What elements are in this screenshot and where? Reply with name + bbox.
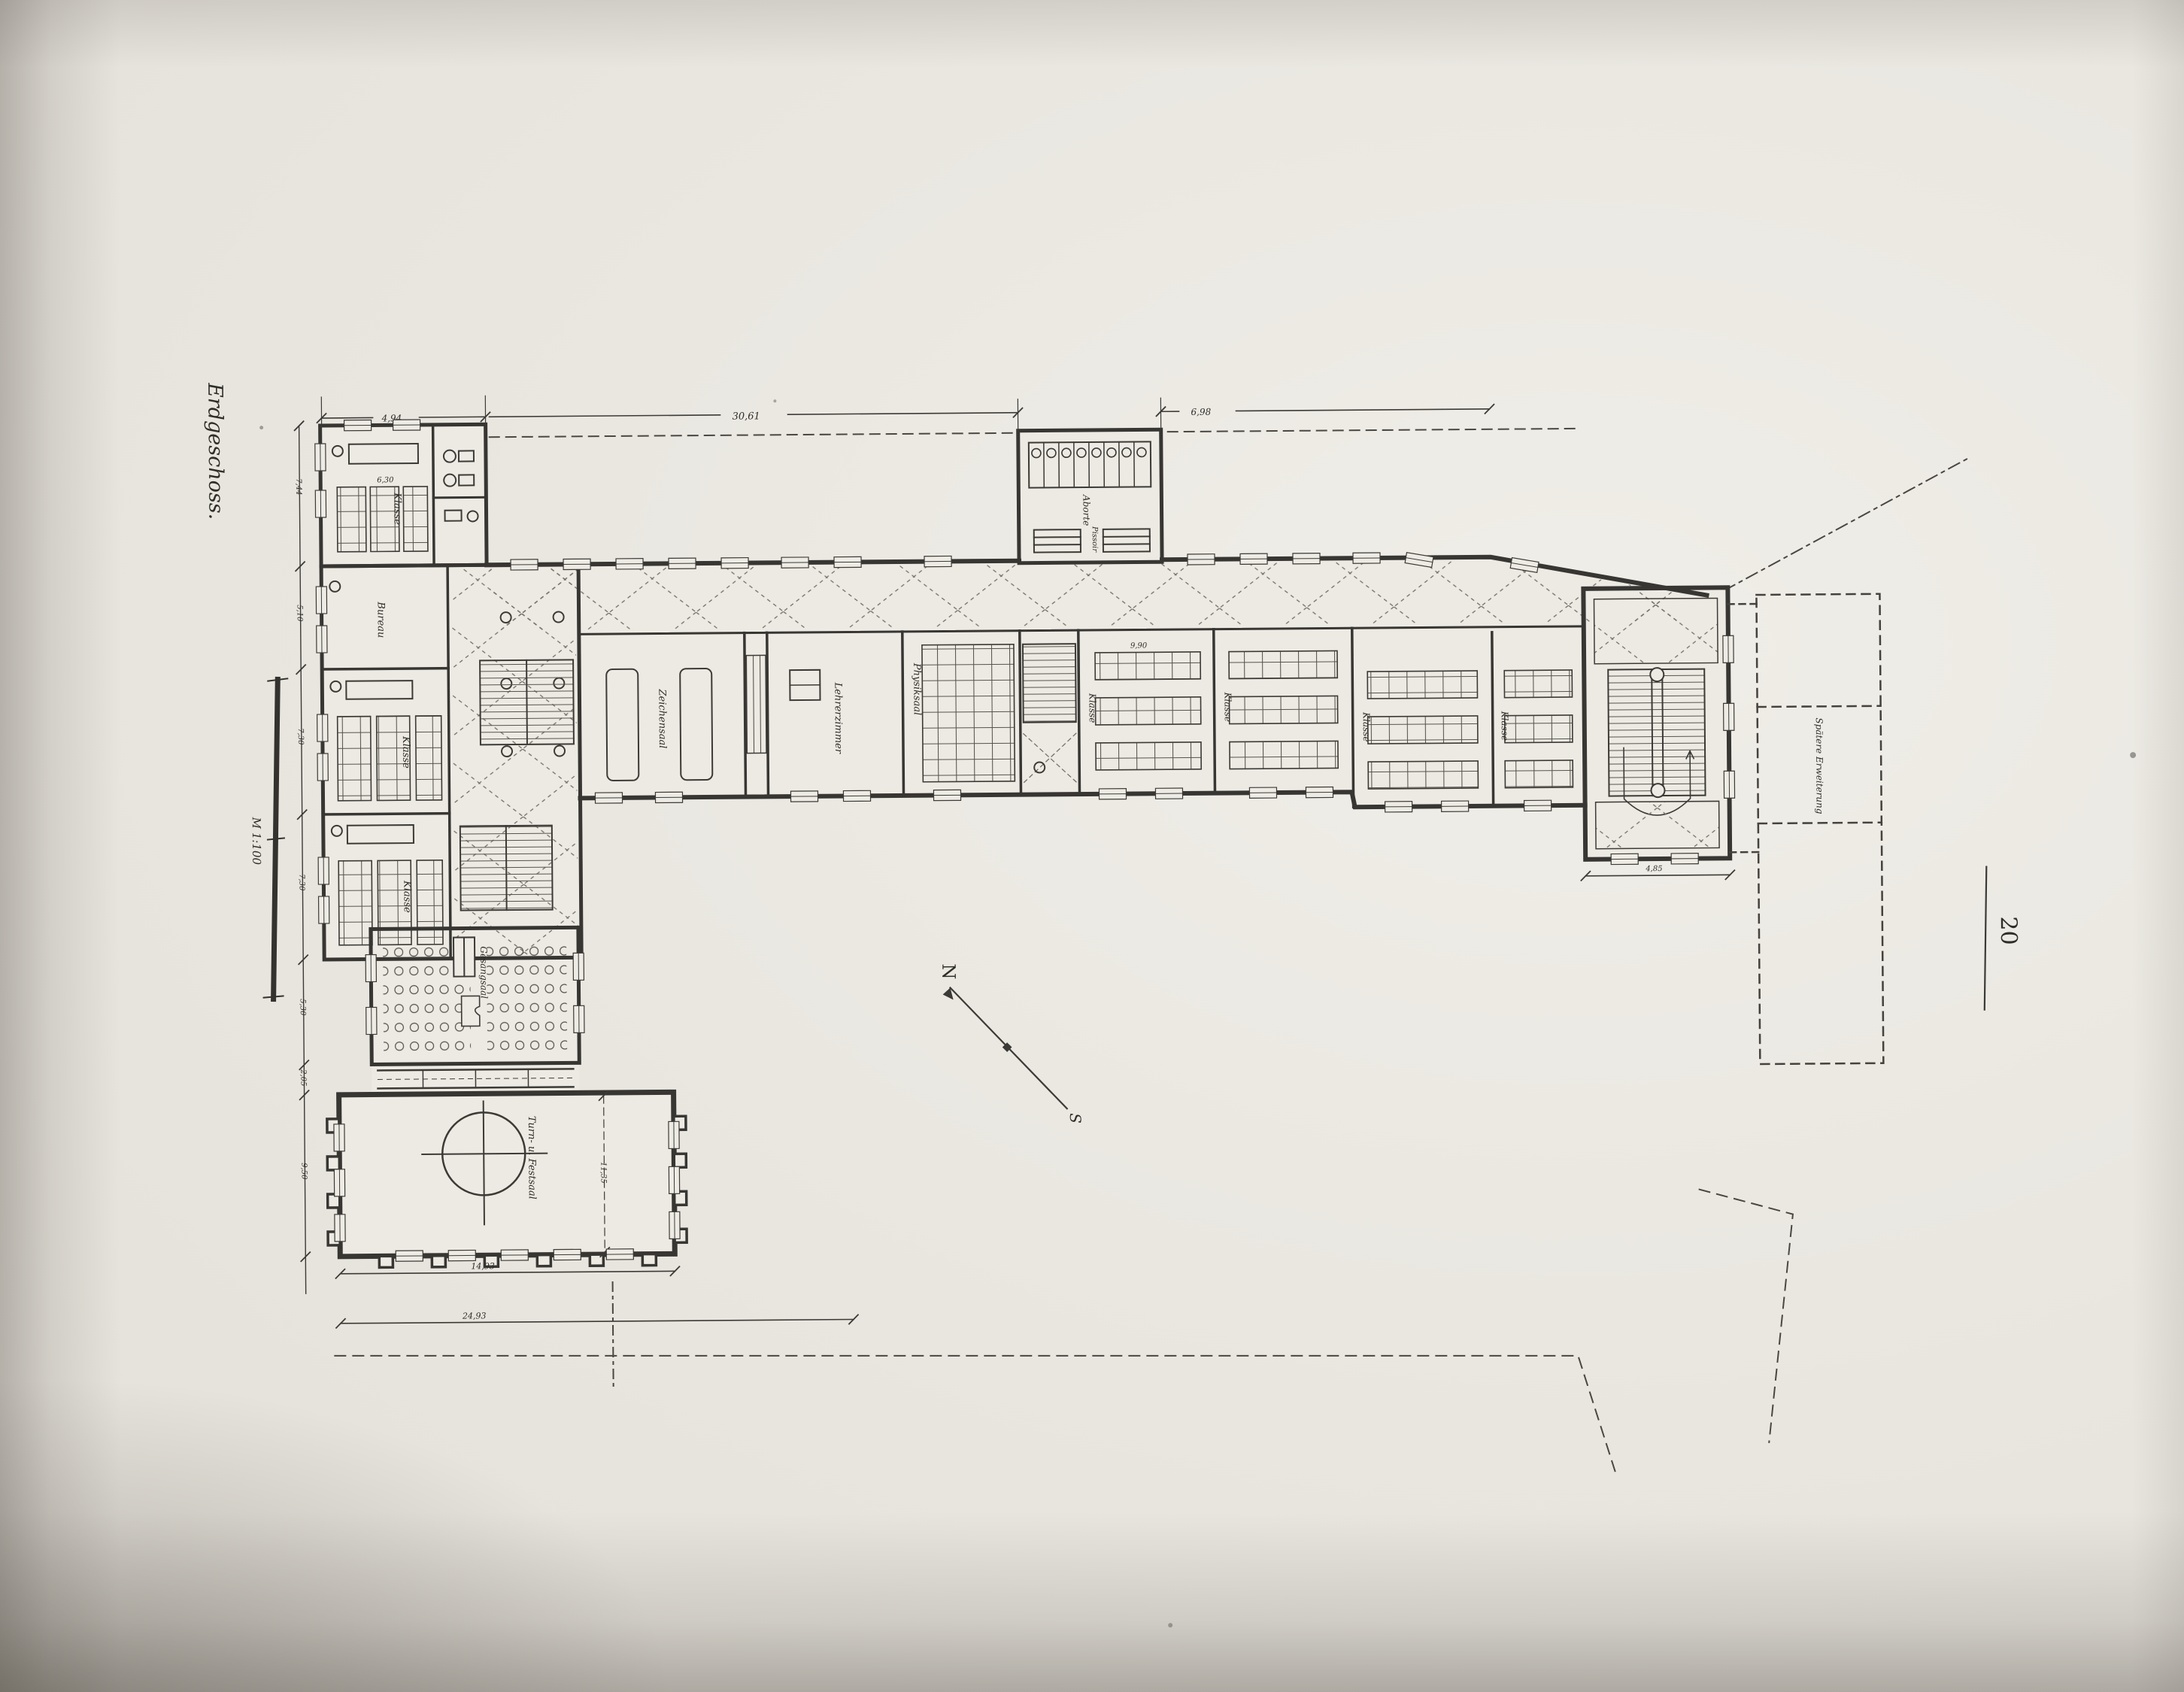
room-classroom-east-2: Klasse — [1222, 650, 1338, 769]
page-number: 20 — [1995, 916, 2022, 945]
floor-plan-drawing: Klasse 6,30 Bureau — [0, 0, 2184, 1692]
future-extension: Spätere Erweiterung — [1727, 594, 1883, 1065]
room-label: Turn- u. Festsaal — [526, 1116, 538, 1199]
room-label: Aborte — [1081, 494, 1091, 526]
dim-label: 30,61 — [732, 411, 760, 422]
desk-rows — [338, 716, 442, 801]
scanned-page: Klasse 6,30 Bureau — [0, 0, 2184, 1692]
room-label: Spätere Erweiterung — [1814, 717, 1825, 814]
desk-rows — [338, 860, 443, 945]
dim-label: 7,44 — [294, 478, 302, 495]
dim-label: 7,30 — [297, 874, 305, 891]
top-dimension-chain: 4,94 30,61 6,98 — [317, 388, 1494, 436]
scale-bar — [261, 678, 290, 999]
room-label: Lehrerzimmer — [832, 682, 844, 754]
dim-label: 6,98 — [1191, 407, 1211, 417]
room-label: Klasse — [1222, 692, 1233, 722]
cellar-stair — [746, 655, 766, 753]
dim-label: 9,90 — [1130, 641, 1148, 650]
room-label: Klasse — [400, 735, 411, 769]
room-label: Zeichensaal — [656, 688, 668, 748]
dim-label: 14,93 — [471, 1261, 495, 1271]
dim-label: 5,10 — [295, 605, 303, 622]
dim-label: 9,50 — [299, 1163, 308, 1180]
room-label: Klasse — [1500, 711, 1510, 741]
dim-label: 24,93 — [462, 1311, 487, 1321]
left-dimension-chain: 7,44 5,10 7,30 7,30 5,30 2,05 9,50 M 1:1… — [247, 421, 311, 1294]
dim-label: 7,30 — [296, 728, 305, 745]
room-classroom-east-1: Klasse 9,90 — [1087, 641, 1201, 770]
room-classroom-east-4: Klasse — [1499, 670, 1573, 788]
compass-south-label: S — [1066, 1113, 1084, 1123]
room-physics: Physiksaal — [911, 644, 1015, 782]
dim-label: 5,30 — [299, 999, 307, 1016]
room-label: Gesangsaal — [478, 946, 490, 999]
room-label: Klasse — [391, 492, 402, 525]
north-arrow: N S — [938, 963, 1084, 1124]
floor-title: Erdgeschoss. — [203, 382, 227, 520]
staircase-west-upper — [480, 660, 574, 744]
staircase-west-lower — [460, 826, 553, 911]
dim-label: 4,85 — [1645, 865, 1662, 873]
room-classroom-east-3: Klasse — [1360, 671, 1478, 789]
room-label: Physiksaal — [911, 663, 923, 716]
dim-label: 6,30 — [377, 476, 394, 484]
dim-label: 11,35 — [599, 1162, 607, 1184]
compass-north-label: N — [938, 963, 959, 979]
room-label: Klasse — [1087, 693, 1097, 723]
room-label: Pissoir — [1090, 526, 1099, 553]
room-label: Klasse — [1361, 711, 1372, 741]
scale-label: M 1:100 — [250, 817, 264, 866]
page-number-block: 20 — [1983, 866, 2022, 1009]
room-label: Bureau — [375, 601, 386, 638]
room-label: Klasse — [401, 880, 412, 913]
dim-label: 2,05 — [299, 1069, 307, 1086]
desk-rows — [337, 487, 428, 552]
